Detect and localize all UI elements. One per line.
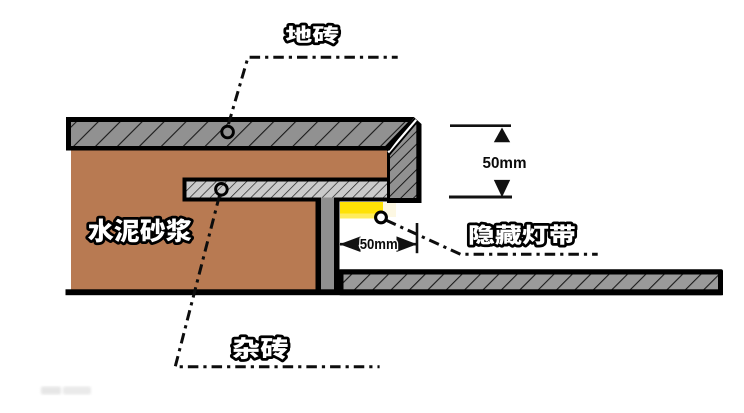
- svg-text:50mm: 50mm: [360, 236, 398, 253]
- svg-text:50mm: 50mm: [483, 155, 527, 172]
